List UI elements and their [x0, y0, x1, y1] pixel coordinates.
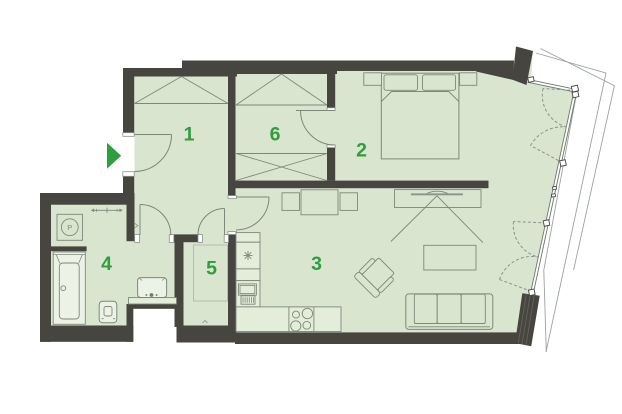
svg-text:3: 3	[311, 253, 322, 275]
svg-text:1: 1	[184, 124, 195, 146]
svg-text:4: 4	[101, 253, 112, 275]
svg-text:5: 5	[206, 258, 217, 280]
svg-text:6: 6	[270, 124, 281, 146]
svg-text:2: 2	[356, 140, 367, 162]
svg-text:P: P	[67, 223, 72, 232]
